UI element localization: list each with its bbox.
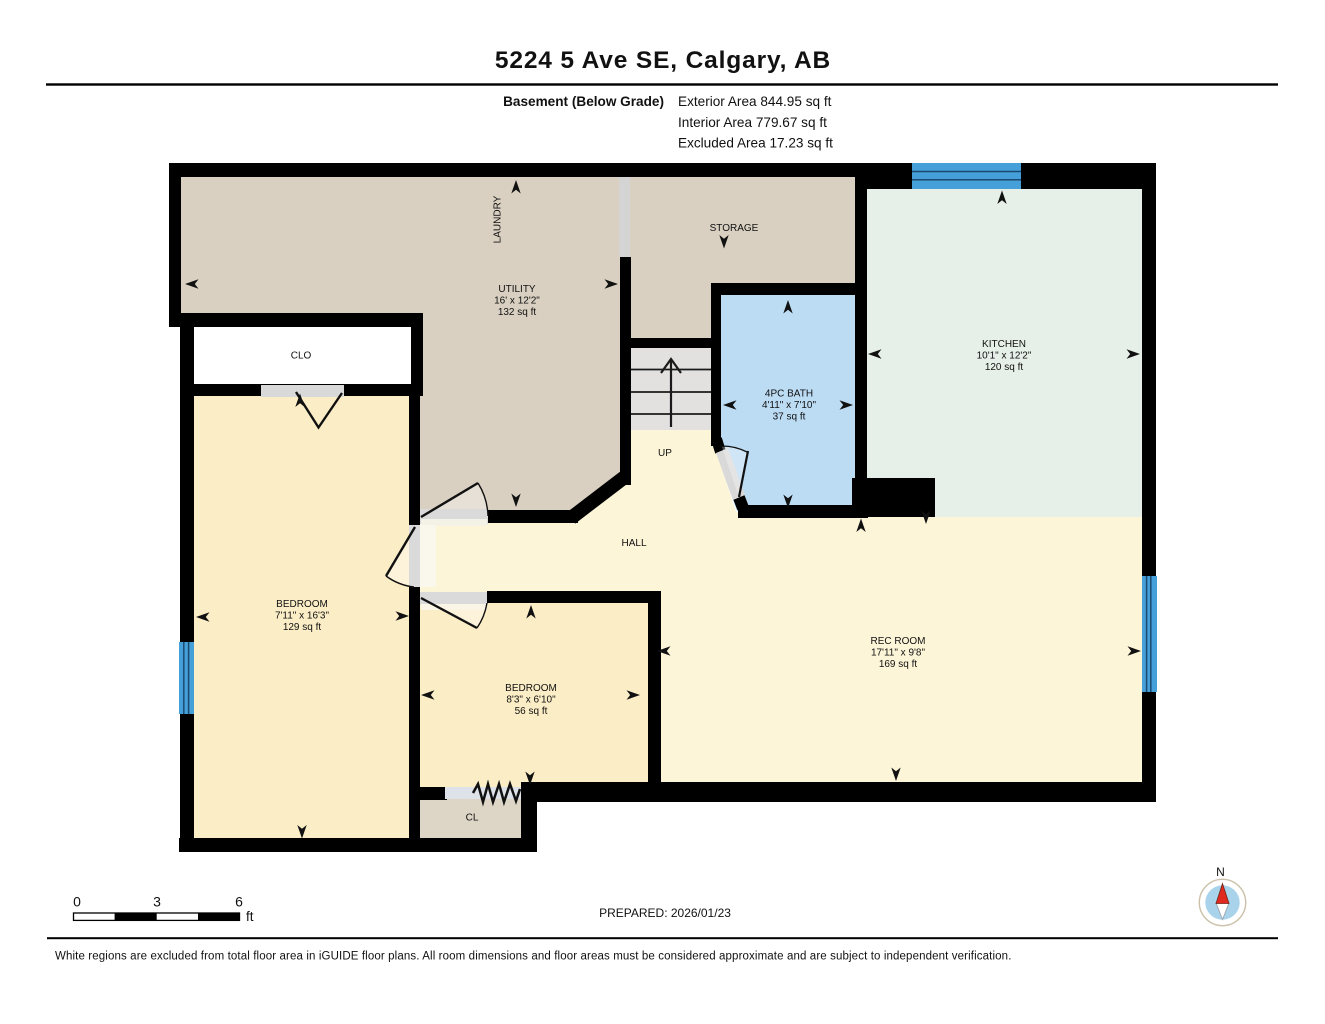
svg-text:REC ROOM: REC ROOM <box>871 636 926 647</box>
svg-text:56 sq ft: 56 sq ft <box>515 706 548 717</box>
svg-text:BEDROOM: BEDROOM <box>276 599 328 610</box>
svg-text:132 sq ft: 132 sq ft <box>498 307 537 318</box>
svg-text:16' x 12'2": 16' x 12'2" <box>494 296 540 307</box>
svg-text:BEDROOM: BEDROOM <box>505 683 557 694</box>
svg-text:Exterior Area 844.95 sq ft: Exterior Area 844.95 sq ft <box>678 94 832 109</box>
svg-text:PREPARED: 2026/01/23: PREPARED: 2026/01/23 <box>599 906 731 920</box>
svg-text:White regions are excluded fro: White regions are excluded from total fl… <box>55 951 1012 963</box>
svg-text:N: N <box>1216 865 1225 879</box>
svg-text:4PC BATH: 4PC BATH <box>765 389 813 400</box>
svg-text:UTILITY: UTILITY <box>498 284 536 295</box>
svg-text:4'11" x 7'10": 4'11" x 7'10" <box>762 400 817 411</box>
svg-text:0: 0 <box>73 894 81 910</box>
svg-text:Interior Area 779.67 sq ft: Interior Area 779.67 sq ft <box>678 115 827 130</box>
svg-text:Basement (Below Grade): Basement (Below Grade) <box>503 94 664 109</box>
svg-text:LAUNDRY: LAUNDRY <box>493 195 504 243</box>
svg-text:CLO: CLO <box>291 351 312 362</box>
svg-text:KITCHEN: KITCHEN <box>982 339 1026 350</box>
svg-text:169 sq ft: 169 sq ft <box>879 659 918 670</box>
svg-text:5224 5 Ave SE, Calgary, AB: 5224 5 Ave SE, Calgary, AB <box>495 47 831 74</box>
svg-text:3: 3 <box>153 894 161 910</box>
svg-text:17'11" x 9'8": 17'11" x 9'8" <box>871 648 926 659</box>
svg-text:CL: CL <box>466 813 479 824</box>
svg-text:120 sq ft: 120 sq ft <box>985 362 1024 373</box>
svg-text:UP: UP <box>658 448 672 459</box>
svg-text:37 sq ft: 37 sq ft <box>773 412 806 423</box>
svg-text:10'1" x 12'2": 10'1" x 12'2" <box>977 351 1032 362</box>
svg-text:STORAGE: STORAGE <box>710 223 759 234</box>
svg-text:6: 6 <box>235 894 243 910</box>
svg-text:ft: ft <box>246 909 254 924</box>
svg-text:7'11" x 16'3": 7'11" x 16'3" <box>275 611 330 622</box>
svg-text:HALL: HALL <box>621 538 646 549</box>
svg-text:8'3" x 6'10": 8'3" x 6'10" <box>506 695 556 706</box>
svg-text:129 sq ft: 129 sq ft <box>283 622 322 633</box>
svg-text:Excluded Area 17.23 sq ft: Excluded Area 17.23 sq ft <box>678 136 833 151</box>
